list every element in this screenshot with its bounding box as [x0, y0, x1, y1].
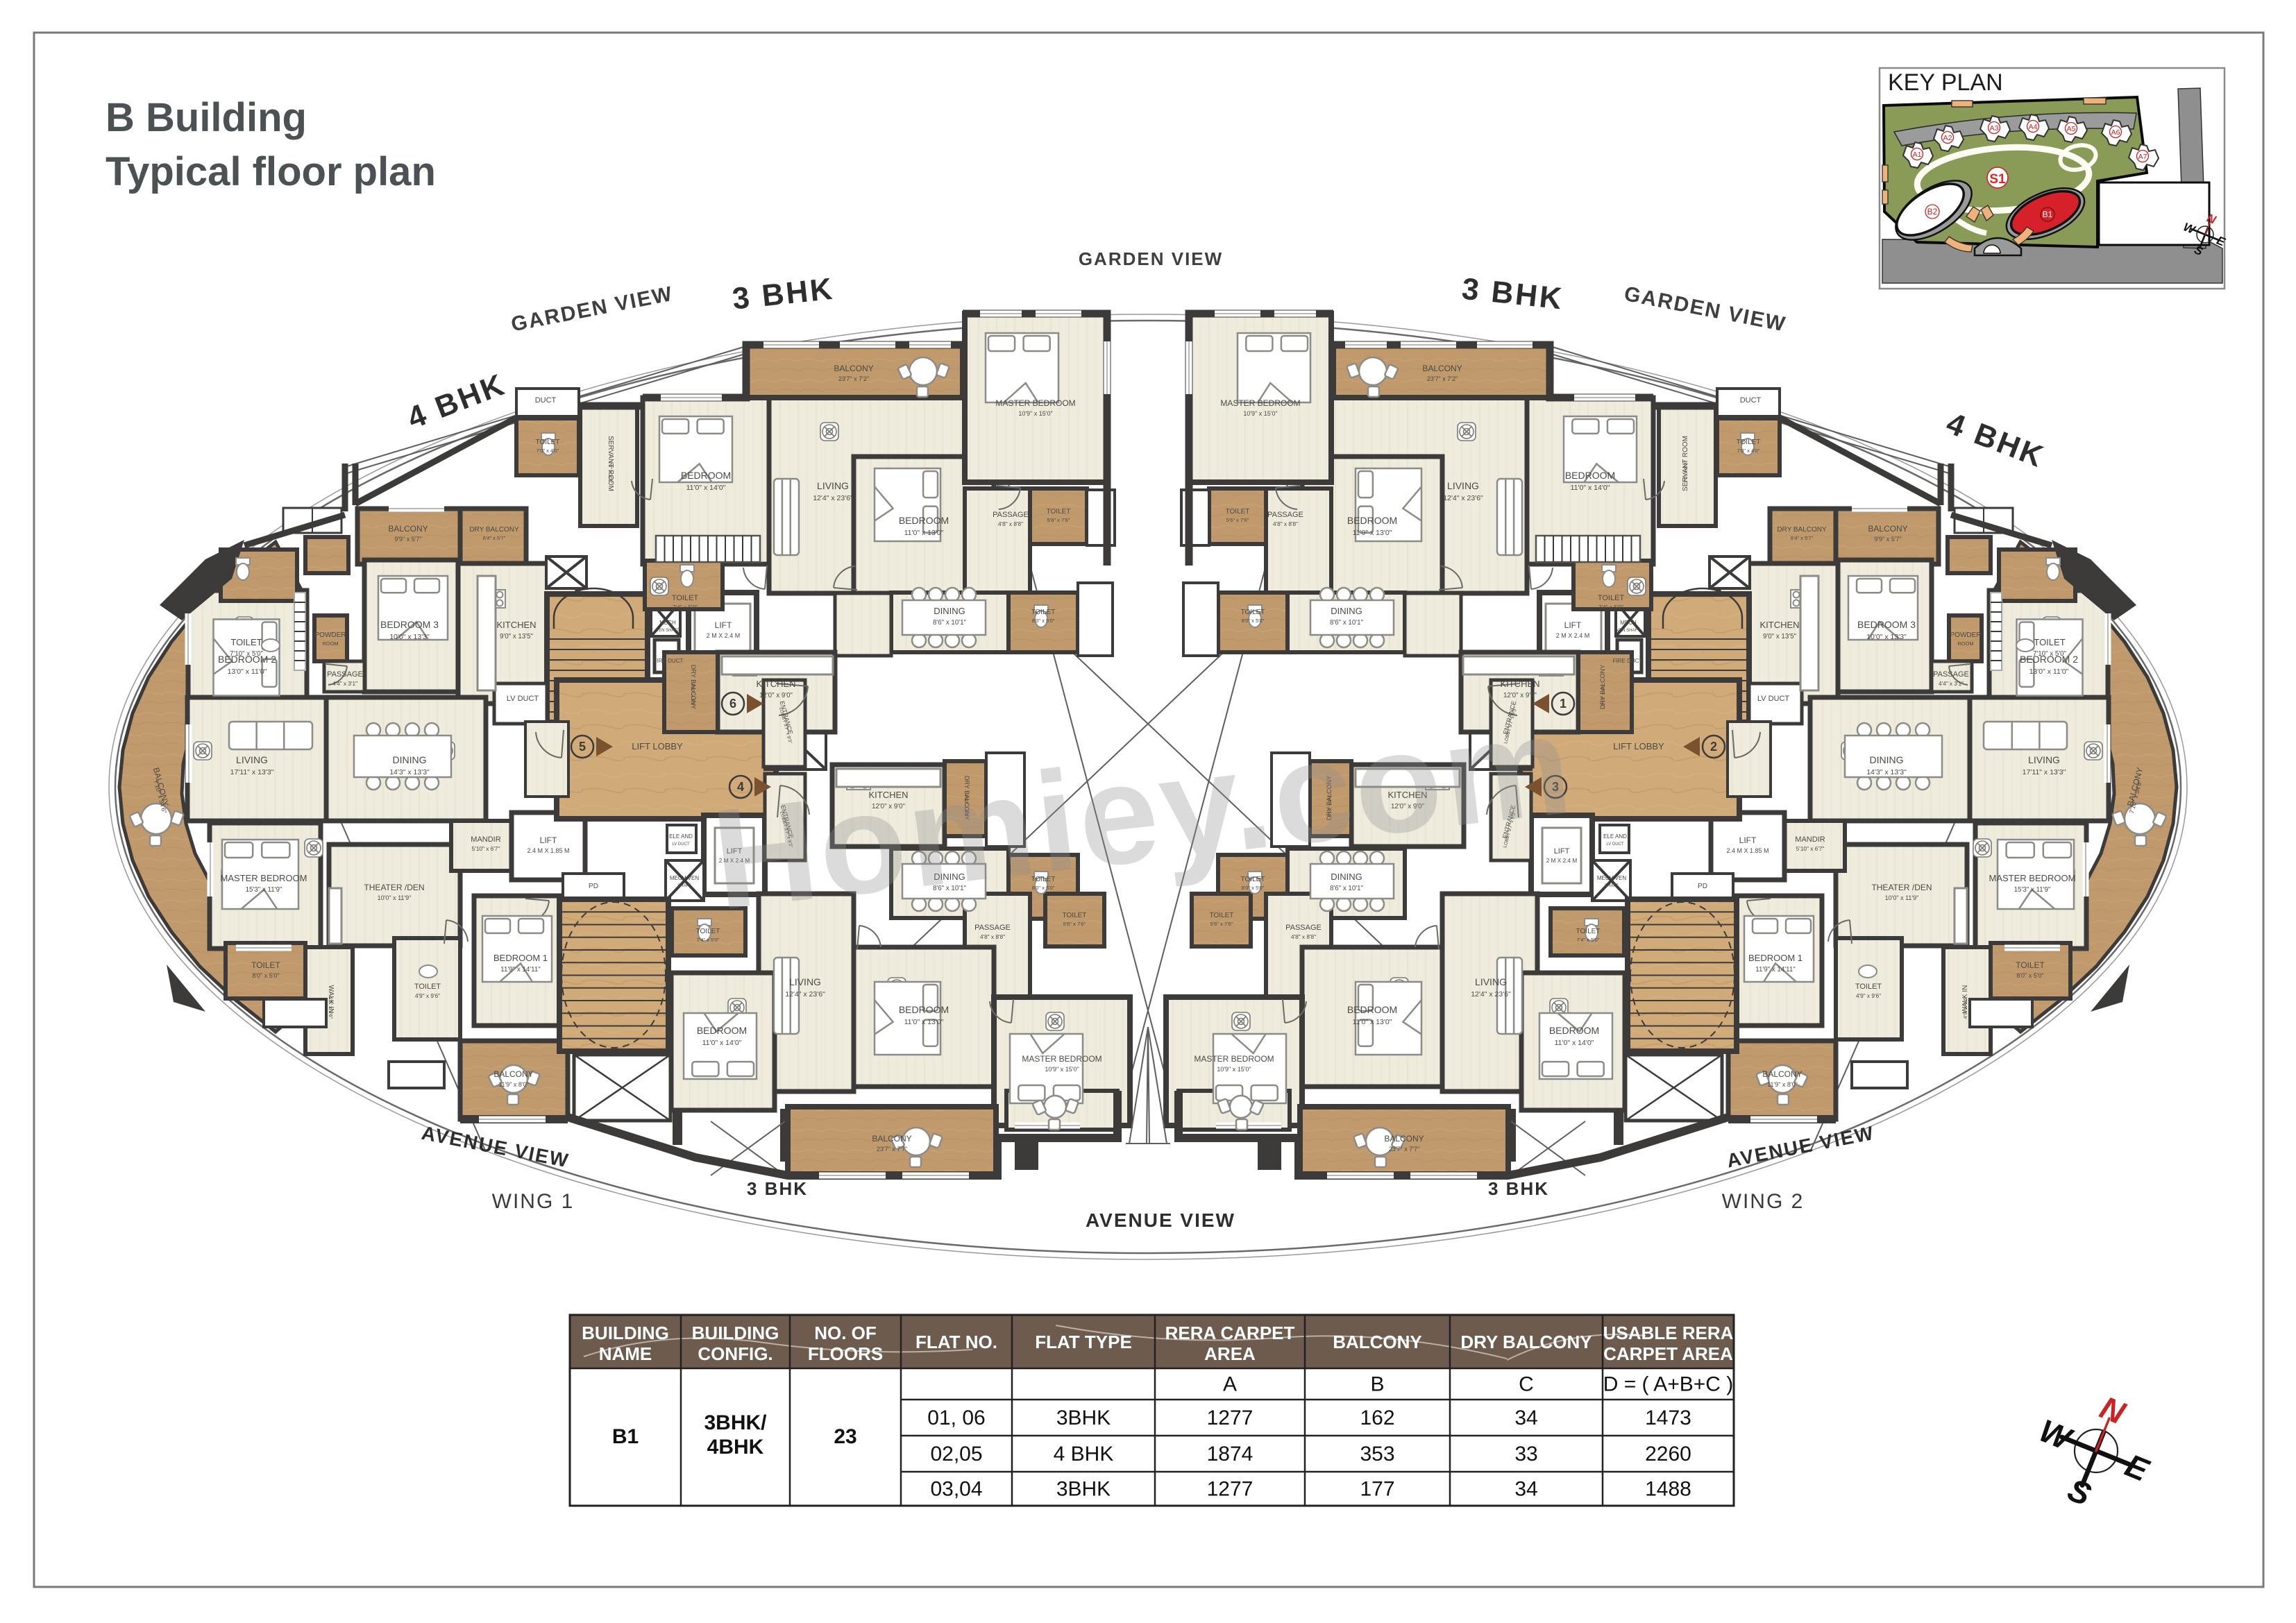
svg-text:B: B: [1370, 1373, 1384, 1396]
svg-text:34: 34: [1514, 1407, 1537, 1429]
svg-text:S1: S1: [1989, 172, 2006, 187]
svg-text:BEDROOM: BEDROOM: [899, 515, 949, 526]
svg-text:BALCONY: BALCONY: [872, 1134, 911, 1144]
svg-text:33: 33: [1514, 1443, 1537, 1465]
svg-text:12'4" x 23'6": 12'4" x 23'6": [785, 990, 825, 999]
svg-text:14'3" x 13'3": 14'3" x 13'3": [1866, 768, 1907, 776]
svg-text:11'0" x 13'0": 11'0" x 13'0": [904, 1018, 944, 1026]
svg-text:A3: A3: [1990, 124, 1999, 133]
svg-text:DINING: DINING: [1331, 606, 1362, 616]
svg-text:11'0" x 14'0": 11'0" x 14'0": [702, 1039, 742, 1047]
svg-text:TOILET: TOILET: [2016, 960, 2045, 970]
svg-text:5'6" x 7'6": 5'6" x 7'6": [1210, 921, 1233, 927]
svg-text:THEATER /DEN: THEATER /DEN: [1871, 883, 1932, 892]
svg-text:4'8" x 8'8": 4'8" x 8'8": [1273, 521, 1298, 527]
svg-text:VEN SHAFT: VEN SHAFT: [656, 629, 679, 633]
svg-text:TOILET: TOILET: [696, 928, 720, 935]
svg-text:8'6" x 10'1": 8'6" x 10'1": [933, 619, 967, 627]
svg-text:162: 162: [1360, 1407, 1394, 1429]
svg-text:KITCHEN: KITCHEN: [1759, 620, 1799, 630]
svg-text:10'0" x 13'3": 10'0" x 13'3": [1866, 633, 1907, 641]
svg-text:LIFT: LIFT: [1554, 847, 1570, 856]
svg-text:NAME: NAME: [599, 1343, 652, 1364]
svg-text:12'4" x 23'6": 12'4" x 23'6": [1443, 494, 1483, 502]
svg-text:TOILET: TOILET: [251, 960, 280, 970]
svg-text:6: 6: [729, 697, 736, 711]
svg-text:BALCONY: BALCONY: [1868, 524, 1907, 534]
svg-text:10'0" x 11'9": 10'0" x 11'9": [378, 894, 412, 901]
svg-text:5'6" x 7'6": 5'6" x 7'6": [1063, 921, 1086, 927]
svg-text:MASTER BEDROOM: MASTER BEDROOM: [1989, 873, 2076, 883]
svg-text:FIRE DUCT: FIRE DUCT: [1613, 658, 1643, 664]
svg-text:PD: PD: [589, 883, 598, 890]
svg-text:BEDROOM: BEDROOM: [899, 1004, 949, 1015]
svg-text:34: 34: [1514, 1478, 1537, 1501]
svg-text:11'9" x 14'11": 11'9" x 14'11": [500, 966, 541, 974]
svg-text:1874: 1874: [1207, 1443, 1253, 1465]
svg-text:23'7" x 7'2": 23'7" x 7'2": [838, 375, 869, 382]
svg-text:GARDEN VIEW: GARDEN VIEW: [1079, 248, 1223, 269]
svg-text:KITCHEN: KITCHEN: [756, 679, 795, 689]
svg-text:10'9" x 15'0": 10'9" x 15'0": [1243, 410, 1277, 417]
svg-text:12'4" x 23'6": 12'4" x 23'6": [1471, 990, 1511, 999]
svg-text:4'4" x 3'1": 4'4" x 3'1": [332, 681, 357, 687]
svg-text:4'9" x 9'6": 4'9" x 9'6": [328, 996, 334, 1019]
svg-text:9'0" x 13'5": 9'0" x 13'5": [1763, 633, 1797, 640]
svg-text:TOILET: TOILET: [1241, 609, 1265, 616]
svg-text:6'4" x 5'7": 6'4" x 5'7": [1791, 535, 1814, 541]
svg-text:8'0" x 5'0": 8'0" x 5'0": [252, 972, 279, 979]
svg-text:2.4 M X 1.85 M: 2.4 M X 1.85 M: [527, 847, 569, 854]
svg-text:14'3" x 13'3": 14'3" x 13'3": [389, 768, 430, 776]
svg-text:DINING: DINING: [1870, 754, 1904, 765]
svg-text:BEDROOM 3: BEDROOM 3: [1857, 619, 1916, 630]
svg-text:3BHK: 3BHK: [1056, 1478, 1111, 1501]
svg-text:BALCONY: BALCONY: [1762, 1069, 1802, 1079]
svg-text:TOILET: TOILET: [1031, 609, 1056, 616]
svg-text:7'0" x 4'0": 7'0" x 4'0": [1737, 448, 1760, 454]
svg-text:TOILET: TOILET: [1737, 439, 1761, 446]
svg-text:DINING: DINING: [393, 754, 427, 765]
svg-text:MASTER BEDROOM: MASTER BEDROOM: [1220, 398, 1300, 408]
svg-text:BUILDING: BUILDING: [692, 1323, 779, 1343]
svg-text:LIFT: LIFT: [1564, 620, 1582, 630]
svg-text:SHAFT: SHAFT: [1605, 884, 1619, 888]
svg-text:10'0" x 13'3": 10'0" x 13'3": [389, 633, 430, 641]
svg-text:12'0" x 9'0": 12'0" x 9'0": [759, 692, 793, 699]
svg-text:2 M X 2.4 M: 2 M X 2.4 M: [707, 632, 741, 639]
svg-text:LV DUCT: LV DUCT: [1757, 695, 1790, 703]
svg-text:A: A: [1223, 1373, 1237, 1396]
svg-text:6'4" x 5'7": 6'4" x 5'7": [483, 535, 506, 541]
svg-text:FIRE DUCT: FIRE DUCT: [654, 658, 684, 664]
svg-text:LIVING: LIVING: [789, 976, 821, 987]
svg-text:1488: 1488: [1645, 1478, 1691, 1501]
svg-text:11'9" x 8'0": 11'9" x 8'0": [498, 1081, 529, 1088]
svg-text:A4: A4: [2029, 123, 2038, 131]
svg-text:11'0" x 13'0": 11'0" x 13'0": [904, 529, 944, 537]
svg-text:A1: A1: [1913, 151, 1922, 159]
svg-text:RERA CARPET: RERA CARPET: [1165, 1323, 1295, 1343]
svg-text:7'0" x 8'3": 7'0" x 8'3": [607, 461, 614, 484]
svg-text:5'6" x 7'6": 5'6" x 7'6": [1226, 517, 1249, 523]
svg-text:A7: A7: [2138, 153, 2147, 161]
svg-text:FLAT NO.: FLAT NO.: [915, 1332, 997, 1352]
svg-text:MECH VEN: MECH VEN: [670, 875, 699, 881]
svg-text:5'6" x 7'6": 5'6" x 7'6": [1047, 517, 1070, 523]
svg-text:LIFT LOBBY: LIFT LOBBY: [632, 741, 683, 751]
svg-text:BUILDING: BUILDING: [582, 1323, 669, 1343]
svg-text:LIVING: LIVING: [236, 754, 268, 765]
svg-text:DUCT: DUCT: [1740, 396, 1762, 405]
svg-text:BEDROOM 2: BEDROOM 2: [218, 654, 276, 665]
svg-text:AVENUE VIEW: AVENUE VIEW: [1086, 1209, 1235, 1231]
svg-text:TOILET: TOILET: [1226, 508, 1250, 516]
svg-text:MASTER BEDROOM: MASTER BEDROOM: [1194, 1054, 1274, 1064]
svg-text:B1: B1: [612, 1425, 639, 1448]
svg-text:23: 23: [834, 1425, 856, 1448]
svg-text:DUCT: DUCT: [535, 396, 557, 405]
svg-text:PASSAGE: PASSAGE: [974, 924, 1011, 932]
svg-text:SHAFT: SHAFT: [677, 884, 691, 888]
svg-text:17'11" x 13'3": 17'11" x 13'3": [2023, 768, 2066, 776]
svg-text:BALCONY: BALCONY: [834, 364, 873, 373]
svg-text:MECH: MECH: [1620, 620, 1637, 626]
svg-text:23'7" x 7'7": 23'7" x 7'7": [1389, 1146, 1419, 1153]
svg-text:8'6" x 10'1": 8'6" x 10'1": [1330, 885, 1364, 892]
svg-text:LIVING: LIVING: [1475, 976, 1507, 987]
svg-text:10'9" x 15'0": 10'9" x 15'0": [1045, 1066, 1079, 1073]
svg-text:2 M X 2.4 M: 2 M X 2.4 M: [1556, 632, 1590, 639]
svg-text:BEDROOM 2: BEDROOM 2: [2020, 654, 2078, 665]
svg-text:PASSAGE: PASSAGE: [1285, 924, 1322, 932]
svg-text:CONFIG.: CONFIG.: [698, 1343, 773, 1364]
svg-text:LIFT: LIFT: [540, 835, 557, 845]
svg-text:MECH: MECH: [659, 620, 676, 626]
svg-text:11'0" x 14'0": 11'0" x 14'0": [1555, 1039, 1594, 1047]
svg-text:BEDROOM: BEDROOM: [1347, 515, 1397, 526]
svg-text:5'10" x 6'7": 5'10" x 6'7": [1796, 846, 1825, 852]
svg-text:4'8" x 8'8": 4'8" x 8'8": [998, 521, 1023, 527]
svg-text:TOILET: TOILET: [230, 637, 262, 647]
svg-text:C: C: [1519, 1373, 1534, 1396]
svg-text:BALCONY: BALCONY: [1384, 1134, 1424, 1144]
svg-text:2.4 M X 1.85 M: 2.4 M X 1.85 M: [1726, 847, 1769, 854]
svg-text:PASSAGE: PASSAGE: [327, 670, 363, 679]
svg-text:4'8" x 8'8": 4'8" x 8'8": [980, 934, 1005, 940]
svg-text:9'9" x 5'7": 9'9" x 5'7": [1874, 536, 1901, 543]
svg-text:WING 2: WING 2: [1722, 1190, 1805, 1213]
svg-text:AREA: AREA: [1204, 1343, 1256, 1364]
svg-text:9'9" x 5'7": 9'9" x 5'7": [394, 536, 421, 543]
svg-text:11'0" x 13'0": 11'0" x 13'0": [1353, 529, 1392, 537]
svg-text:NO. OF: NO. OF: [814, 1323, 877, 1343]
svg-text:B Building: B Building: [105, 95, 307, 140]
svg-text:23'7" x 7'2": 23'7" x 7'2": [1427, 375, 1458, 382]
svg-text:LIFT: LIFT: [1739, 835, 1757, 845]
svg-text:4 BHK: 4 BHK: [1054, 1443, 1114, 1465]
svg-text:PASSAGE: PASSAGE: [1267, 511, 1303, 519]
svg-text:7'0" x 4'0": 7'0" x 4'0": [537, 448, 559, 454]
svg-text:BEDROOM: BEDROOM: [1347, 1004, 1397, 1015]
svg-text:15'3" x 11'9": 15'3" x 11'9": [2014, 886, 2051, 894]
svg-text:MANDIR: MANDIR: [471, 835, 500, 844]
svg-text:17'11" x 13'3": 17'11" x 13'3": [230, 768, 274, 776]
svg-text:353: 353: [1360, 1443, 1394, 1465]
svg-text:7'4" x 5'0": 7'4" x 5'0": [1577, 937, 1600, 943]
svg-text:11'0" x 13'0": 11'0" x 13'0": [1353, 1018, 1392, 1026]
svg-text:9'0" x 13'5": 9'0" x 13'5": [500, 633, 534, 640]
svg-text:03,04: 03,04: [930, 1478, 982, 1501]
svg-text:VEN SHAFT: VEN SHAFT: [1617, 629, 1640, 633]
svg-text:A2: A2: [1943, 134, 1952, 142]
svg-text:7'0" x 8'3": 7'0" x 8'3": [1682, 460, 1689, 483]
svg-text:2 M X 2.4 M: 2 M X 2.4 M: [1546, 858, 1578, 864]
svg-text:11'9" x 14'11": 11'9" x 14'11": [1755, 966, 1796, 974]
svg-text:4'9" x 9'6": 4'9" x 9'6": [415, 993, 440, 999]
svg-text:BEDROOM: BEDROOM: [1565, 470, 1615, 481]
svg-text:1277: 1277: [1207, 1407, 1253, 1429]
svg-text:BEDROOM 3: BEDROOM 3: [380, 619, 439, 630]
svg-text:3 BHK: 3 BHK: [1488, 1178, 1549, 1199]
svg-text:3'10" x 9'3": 3'10" x 9'3": [1601, 683, 1606, 706]
svg-text:LV DUCT: LV DUCT: [672, 842, 690, 847]
svg-text:10'9" x 15'0": 10'9" x 15'0": [1018, 410, 1052, 417]
svg-text:15'3" x 11'9": 15'3" x 11'9": [246, 886, 282, 894]
svg-text:DRY BALCONY: DRY BALCONY: [469, 526, 519, 534]
svg-text:3BHK/: 3BHK/: [704, 1411, 767, 1434]
svg-text:7'4" x 5'0": 7'4" x 5'0": [1598, 604, 1623, 611]
svg-text:DINING: DINING: [1331, 872, 1362, 882]
svg-text:13'0" x 11'0": 13'0" x 11'0": [228, 668, 267, 676]
svg-text:BEDROOM 1: BEDROOM 1: [493, 953, 548, 963]
svg-text:02,05: 02,05: [930, 1443, 982, 1465]
svg-text:8'0" x 5'0": 8'0" x 5'0": [1242, 618, 1265, 624]
svg-text:8'0" x 5'0": 8'0" x 5'0": [1242, 885, 1265, 891]
svg-text:MECH VEN: MECH VEN: [1597, 875, 1626, 881]
svg-text:BEDROOM: BEDROOM: [697, 1025, 747, 1036]
svg-text:4BHK: 4BHK: [707, 1436, 764, 1459]
svg-text:177: 177: [1360, 1478, 1394, 1501]
svg-text:10'9" x 15'0": 10'9" x 15'0": [1217, 1066, 1251, 1073]
svg-text:10'0" x 11'9": 10'0" x 11'9": [1885, 894, 1919, 901]
svg-text:3 BHK: 3 BHK: [747, 1178, 808, 1199]
svg-text:2: 2: [1710, 740, 1717, 754]
svg-text:TOILET: TOILET: [1063, 912, 1087, 919]
svg-text:FLOORS: FLOORS: [808, 1343, 883, 1364]
svg-text:7'4" x 5'0": 7'4" x 5'0": [673, 604, 698, 611]
svg-text:POWDER: POWDER: [1950, 631, 1982, 639]
svg-text:TOILET: TOILET: [2034, 637, 2065, 647]
svg-text:DINING: DINING: [934, 606, 965, 616]
svg-text:8'6" x 10'1": 8'6" x 10'1": [1330, 619, 1364, 627]
svg-text:LIFT: LIFT: [715, 620, 732, 630]
svg-text:B2: B2: [1927, 207, 1938, 216]
svg-text:THEATER /DEN: THEATER /DEN: [364, 883, 424, 892]
svg-text:3BHK: 3BHK: [1056, 1407, 1111, 1429]
svg-text:LIVING: LIVING: [817, 480, 849, 491]
svg-text:LV DUCT: LV DUCT: [507, 695, 539, 703]
svg-text:TOILET: TOILET: [1855, 983, 1882, 991]
svg-text:LV DUCT: LV DUCT: [1606, 842, 1624, 847]
svg-text:TOILET: TOILET: [414, 983, 441, 991]
svg-text:TOILET: TOILET: [1210, 912, 1234, 919]
svg-text:USABLE RERA: USABLE RERA: [1603, 1323, 1734, 1343]
svg-text:4'9" x 9'6": 4'9" x 9'6": [1962, 996, 1968, 1019]
svg-text:FLAT TYPE: FLAT TYPE: [1035, 1332, 1132, 1352]
svg-text:2260: 2260: [1645, 1443, 1691, 1465]
svg-text:D = ( A+B+C ): D = ( A+B+C ): [1603, 1373, 1734, 1396]
svg-text:ELE AND: ELE AND: [1603, 833, 1627, 840]
svg-text:5: 5: [579, 740, 586, 754]
svg-text:1473: 1473: [1645, 1407, 1691, 1429]
svg-text:CARPET AREA: CARPET AREA: [1603, 1343, 1733, 1364]
svg-text:BALCONY: BALCONY: [1333, 1332, 1422, 1352]
svg-text:PASSAGE: PASSAGE: [1933, 670, 1969, 679]
svg-text:BEDROOM: BEDROOM: [681, 470, 731, 481]
svg-text:7'4" x 5'0": 7'4" x 5'0": [697, 937, 720, 943]
svg-text:13'0" x 11'0": 13'0" x 11'0": [2029, 668, 2069, 676]
svg-text:01, 06: 01, 06: [927, 1407, 985, 1429]
svg-text:LIVING: LIVING: [1447, 480, 1479, 491]
svg-text:PD: PD: [1698, 883, 1707, 890]
svg-text:ROOM: ROOM: [1957, 640, 1973, 647]
svg-text:A5: A5: [2067, 125, 2076, 133]
svg-text:TOILET: TOILET: [1598, 594, 1625, 602]
svg-text:MANDIR: MANDIR: [1795, 835, 1825, 844]
svg-text:WING 1: WING 1: [492, 1190, 575, 1213]
svg-text:8'0" x 5'0": 8'0" x 5'0": [2016, 972, 2043, 979]
svg-text:BEDROOM 1: BEDROOM 1: [1748, 953, 1803, 963]
svg-text:B1: B1: [2043, 210, 2053, 219]
svg-text:ELE AND: ELE AND: [669, 833, 693, 840]
svg-text:12'4" x 23'6": 12'4" x 23'6": [813, 494, 853, 502]
svg-text:KITCHEN: KITCHEN: [496, 620, 536, 630]
svg-text:BALCONY: BALCONY: [388, 524, 428, 534]
svg-text:BEDROOM: BEDROOM: [1549, 1025, 1599, 1036]
svg-text:MASTER BEDROOM: MASTER BEDROOM: [1022, 1054, 1101, 1064]
svg-text:1277: 1277: [1207, 1478, 1253, 1501]
svg-text:23'7" x 7'7": 23'7" x 7'7": [877, 1146, 907, 1153]
svg-text:11'9" x 8'0": 11'9" x 8'0": [1767, 1081, 1798, 1088]
svg-text:5'10" x 6'7": 5'10" x 6'7": [472, 846, 500, 852]
svg-text:DRY BALCONY: DRY BALCONY: [1460, 1332, 1592, 1352]
svg-text:TOILET: TOILET: [1047, 508, 1071, 516]
svg-text:KEY PLAN: KEY PLAN: [1888, 69, 2003, 96]
svg-text:TOILET: TOILET: [672, 594, 699, 602]
svg-text:LIVING: LIVING: [2028, 754, 2060, 765]
svg-text:4'9" x 9'6": 4'9" x 9'6": [1856, 993, 1881, 999]
svg-text:Typical floor plan: Typical floor plan: [105, 149, 436, 194]
svg-text:TOILET: TOILET: [1576, 928, 1601, 935]
svg-text:MASTER BEDROOM: MASTER BEDROOM: [995, 398, 1075, 408]
svg-text:TOILET: TOILET: [536, 439, 560, 446]
svg-text:BALCONY: BALCONY: [1422, 364, 1462, 373]
svg-text:11'0" x 14'0": 11'0" x 14'0": [1571, 484, 1610, 492]
svg-text:MASTER BEDROOM: MASTER BEDROOM: [221, 873, 307, 883]
svg-text:LIFT LOBBY: LIFT LOBBY: [1613, 741, 1664, 751]
svg-text:A6: A6: [2111, 128, 2120, 137]
svg-text:PASSAGE: PASSAGE: [993, 511, 1029, 519]
svg-text:BALCONY: BALCONY: [493, 1069, 533, 1079]
svg-text:8'0" x 5'0": 8'0" x 5'0": [1032, 618, 1055, 624]
svg-text:POWDER: POWDER: [315, 631, 346, 639]
svg-text:4'4" x 3'1": 4'4" x 3'1": [1939, 681, 1964, 687]
svg-text:4'8" x 8'8": 4'8" x 8'8": [1291, 934, 1316, 940]
svg-text:3'10" x 9'3": 3'10" x 9'3": [690, 683, 695, 706]
svg-text:DRY BALCONY: DRY BALCONY: [1777, 526, 1827, 534]
svg-text:11'0" x 14'0": 11'0" x 14'0": [686, 484, 726, 492]
svg-text:ROOM: ROOM: [322, 640, 338, 647]
